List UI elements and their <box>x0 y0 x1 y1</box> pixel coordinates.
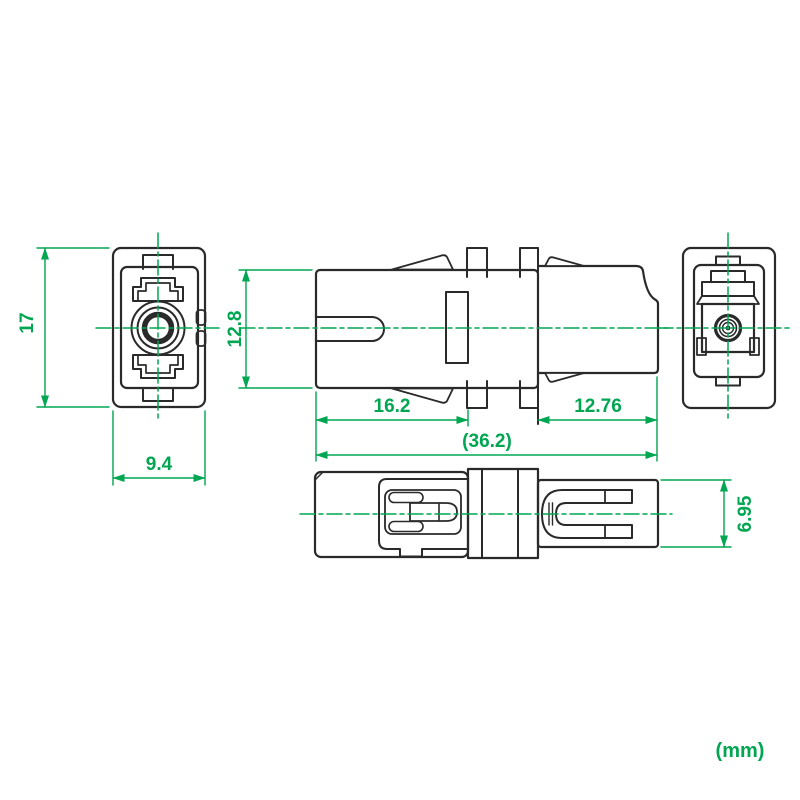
top-latch-plunger <box>410 503 457 521</box>
dimension-front-width: 9.4 <box>113 411 205 485</box>
dimension-front-height: 17 <box>17 248 109 407</box>
dimension-side-body-height: 12.8 <box>225 270 312 388</box>
flange-tab-top-left <box>467 248 487 277</box>
flange-tab-bottom-left <box>467 381 487 408</box>
side-main-body <box>316 270 538 388</box>
dimension-label-overall-length: (36.2) <box>462 431 512 452</box>
rear-view <box>658 233 792 422</box>
top-latch-pill-upper <box>389 493 423 503</box>
units-label: (mm) <box>716 740 765 762</box>
side-latch-top <box>392 255 453 269</box>
dimension-label-height: 17 <box>17 312 38 333</box>
dimension-top-rear-width: 6.95 <box>661 480 756 547</box>
dimension-label-body-height: 12.8 <box>225 311 246 348</box>
dimension-label-rear-length: 12.76 <box>574 396 622 417</box>
front-view <box>96 233 222 422</box>
dimension-drawing: 17 9.4 12.8 16.2 12.7 <box>0 0 800 800</box>
dimension-label-rear-width: 6.95 <box>735 495 756 532</box>
dimension-side-overall-length: (36.2) <box>316 431 657 455</box>
top-view <box>300 469 672 558</box>
top-latch-pill-lower <box>389 522 423 532</box>
side-rear-latch-bottom <box>545 373 584 382</box>
flange-tab-top-right <box>520 248 538 277</box>
dimension-label-width: 9.4 <box>146 454 173 475</box>
side-rear-body <box>538 266 658 373</box>
side-rear-latch-top <box>545 257 584 266</box>
dimension-side-rear-length: 12.76 <box>538 377 657 461</box>
side-front-slot <box>316 317 384 341</box>
flange-tab-bottom-right <box>520 381 538 408</box>
dimension-label-front-length: 16.2 <box>374 396 411 417</box>
